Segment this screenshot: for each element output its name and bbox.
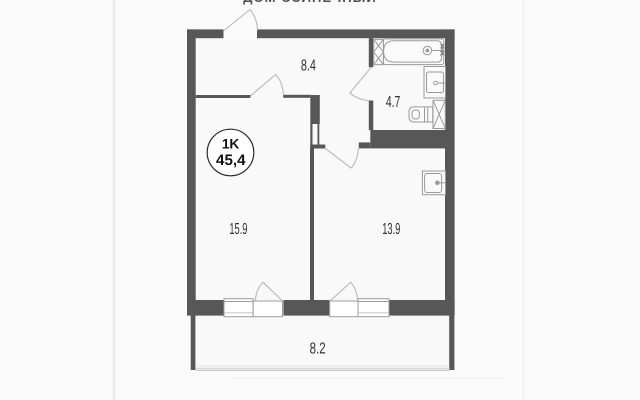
svg-text:8.2: 8.2 xyxy=(310,341,326,358)
svg-text:4.7: 4.7 xyxy=(386,94,401,111)
svg-text:1K: 1K xyxy=(222,136,239,151)
svg-text:15.9: 15.9 xyxy=(229,221,247,238)
svg-text:8.4: 8.4 xyxy=(301,57,316,74)
svg-text:13.9: 13.9 xyxy=(382,221,400,238)
svg-text:45,4: 45,4 xyxy=(216,152,246,169)
